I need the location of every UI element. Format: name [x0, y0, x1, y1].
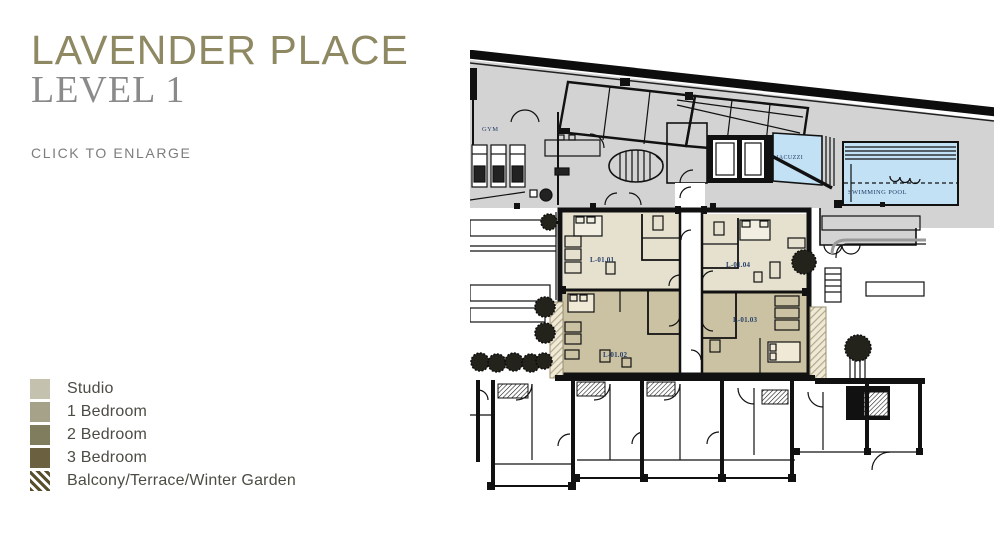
unit-label-l0102: L-01.02 — [603, 351, 627, 359]
swimming-pool-label: SWIMMING POOL — [848, 189, 907, 196]
page-title: LAVENDER PLACE — [31, 30, 409, 71]
legend-label: Studio — [67, 380, 114, 398]
swimming-pool: SWIMMING POOL — [843, 142, 958, 205]
legend-item-2-bedroom: 2 Bedroom — [30, 425, 296, 445]
legend-label: Balcony/Terrace/Winter Garden — [67, 472, 296, 490]
unit-label-l0101: L-01.01 — [590, 256, 614, 264]
legend: Studio 1 Bedroom 2 Bedroom 3 Bedroom Bal… — [30, 379, 296, 494]
floorplan-image[interactable]: GYM — [470, 50, 994, 520]
three-bedroom-swatch — [30, 448, 50, 468]
legend-item-balcony: Balcony/Terrace/Winter Garden — [30, 471, 296, 491]
unit-label-l0103: L-01.03 — [733, 316, 757, 324]
two-bedroom-swatch — [30, 425, 50, 445]
click-to-enlarge-hint[interactable]: CLICK TO ENLARGE — [31, 145, 409, 161]
elevator-icon — [707, 135, 773, 183]
legend-item-studio: Studio — [30, 379, 296, 399]
balcony-hatch-right — [810, 307, 826, 380]
gym-label: GYM — [482, 126, 498, 133]
unit-label-l0104: L-01.04 — [726, 261, 750, 269]
legend-item-1-bedroom: 1 Bedroom — [30, 402, 296, 422]
apartment-block: L-01.01 L-01.02 L-01.03 L-01.04 — [550, 183, 826, 380]
one-bedroom-swatch — [30, 402, 50, 422]
legend-label: 1 Bedroom — [67, 403, 147, 421]
studio-swatch — [30, 379, 50, 399]
townhouse-row — [470, 378, 925, 490]
page-subtitle: LEVEL 1 — [31, 71, 409, 111]
page-header: LAVENDER PLACE LEVEL 1 CLICK TO ENLARGE — [31, 30, 409, 161]
legend-label: 3 Bedroom — [67, 449, 147, 467]
balcony-hatch-swatch — [30, 471, 50, 491]
floorplan-svg: GYM — [470, 50, 994, 520]
legend-item-3-bedroom: 3 Bedroom — [30, 448, 296, 468]
legend-label: 2 Bedroom — [67, 426, 147, 444]
